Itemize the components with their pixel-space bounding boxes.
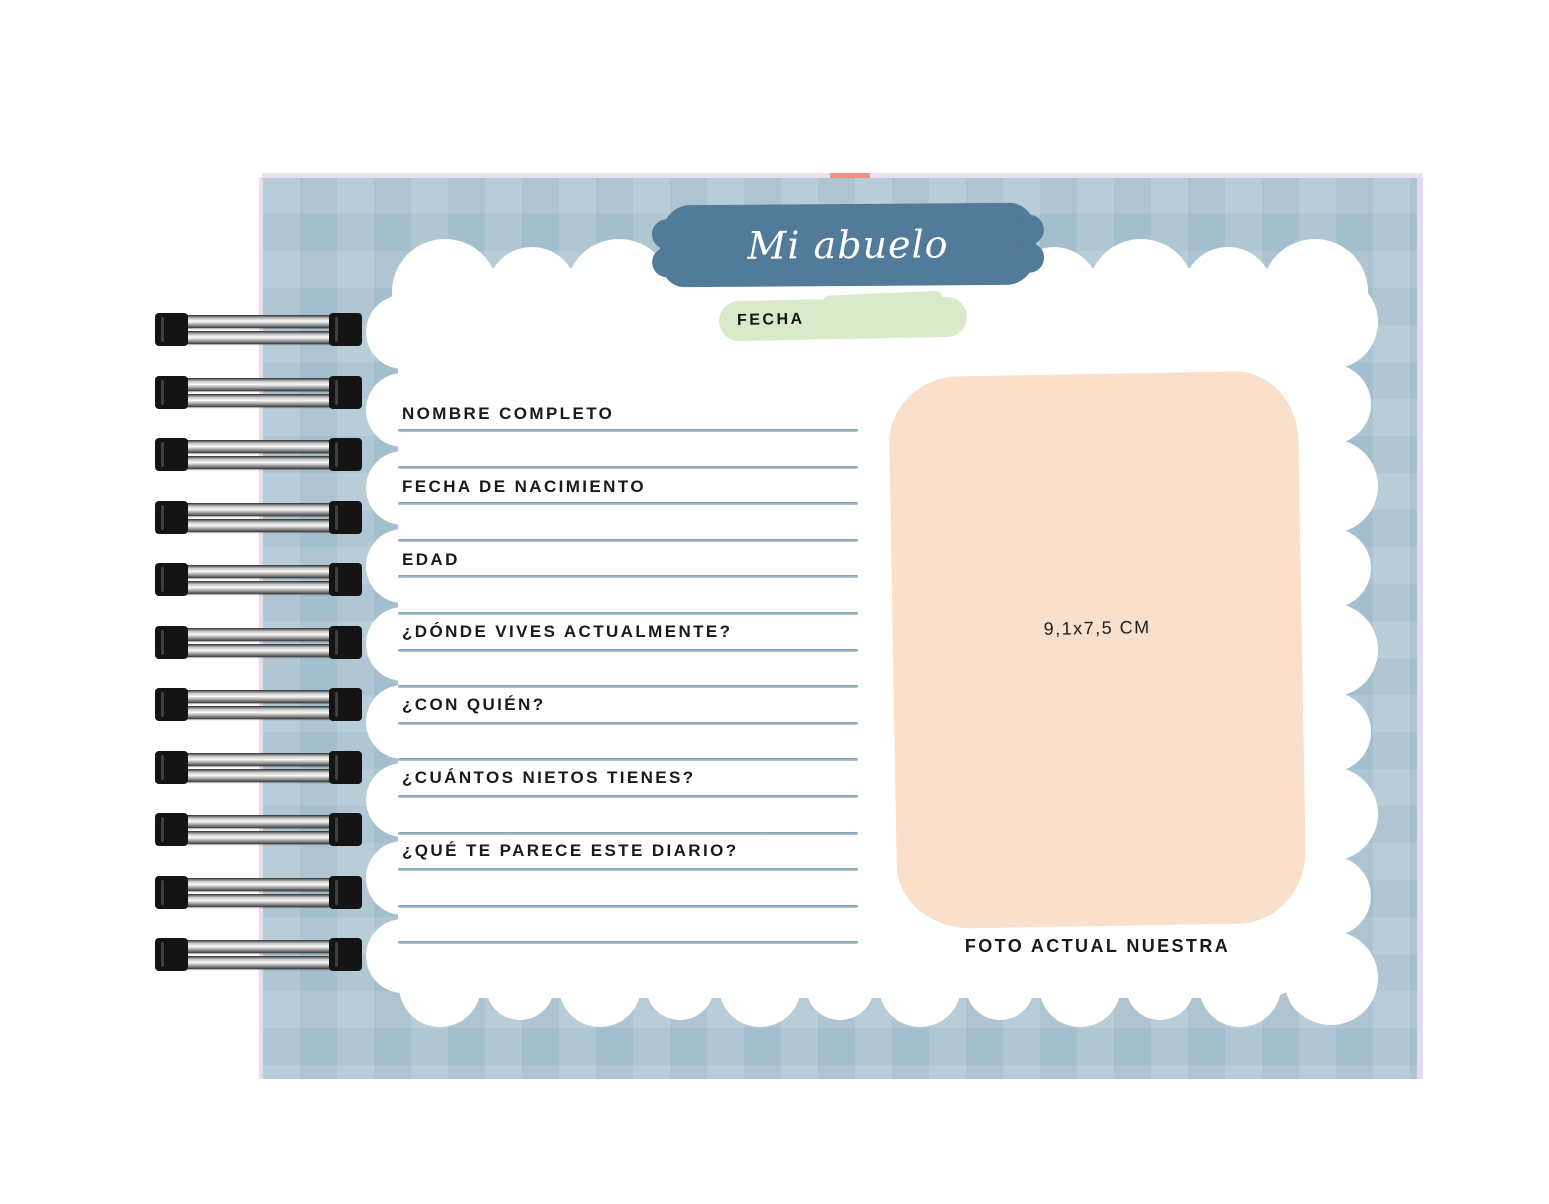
spiral-ring: [155, 938, 362, 971]
ring-hole: [329, 376, 362, 409]
salmon-tab: [830, 173, 870, 178]
answer-line: [398, 685, 858, 688]
label-underline: [398, 429, 858, 432]
ring-wire: [161, 956, 356, 969]
ring-hole: [155, 626, 188, 659]
ring-wire: [161, 878, 356, 891]
ring-wire: [161, 769, 356, 782]
label-underline: [398, 649, 858, 652]
field-label-edad: EDAD: [402, 550, 460, 570]
answer-line: [398, 466, 858, 469]
field-label-nombre-completo: NOMBRE COMPLETO: [402, 404, 614, 424]
ring-wire: [161, 331, 356, 344]
ring-hole: [329, 438, 362, 471]
ring-wire: [161, 503, 356, 516]
ring-wire: [161, 831, 356, 844]
ring-hole: [155, 876, 188, 909]
ring-wire: [161, 378, 356, 391]
ring-wire: [161, 628, 356, 641]
ring-wire: [161, 690, 356, 703]
ring-hole: [329, 938, 362, 971]
ring-hole: [329, 688, 362, 721]
date-highlight: FECHA: [719, 297, 968, 342]
label-underline: [398, 795, 858, 798]
banner-lobe: [652, 247, 682, 277]
spiral-ring: [155, 688, 362, 721]
spiral-ring: [155, 501, 362, 534]
ring-hole: [329, 626, 362, 659]
field-label-que-te-parece: ¿QUÉ TE PARECE ESTE DIARIO?: [402, 841, 739, 861]
ring-wire: [161, 565, 356, 578]
label-underline: [398, 502, 858, 505]
page-edge-right: [1417, 177, 1423, 1079]
ring-hole: [155, 438, 188, 471]
ring-hole: [329, 313, 362, 346]
field-label-fecha-nacimiento: FECHA DE NACIMIENTO: [402, 477, 646, 497]
ring-wire: [161, 753, 356, 766]
date-label: FECHA: [737, 311, 805, 330]
spiral-ring: [155, 751, 362, 784]
ring-wire: [161, 815, 356, 828]
ring-wire: [161, 581, 356, 594]
spiral-ring: [155, 813, 362, 846]
ring-wire: [161, 706, 356, 719]
ring-hole: [329, 876, 362, 909]
ring-wire: [161, 456, 356, 469]
ring-hole: [155, 563, 188, 596]
banner-lobe: [652, 219, 682, 249]
ring-hole: [155, 313, 188, 346]
spiral-ring: [155, 876, 362, 909]
ring-wire: [161, 894, 356, 907]
answer-line: [398, 612, 858, 615]
field-label-cuantos-nietos: ¿CUÁNTOS NIETOS TIENES?: [402, 768, 696, 788]
ring-wire: [161, 519, 356, 532]
banner-lobe: [1014, 243, 1044, 273]
ring-hole: [155, 938, 188, 971]
spiral-ring: [155, 438, 362, 471]
ring-hole: [155, 751, 188, 784]
field-label-con-quien: ¿CON QUIÉN?: [402, 695, 546, 715]
ring-hole: [329, 813, 362, 846]
spiral-ring: [155, 313, 362, 346]
ring-hole: [155, 376, 188, 409]
ring-hole: [329, 501, 362, 534]
ring-wire: [161, 644, 356, 657]
photo-size-hint: 9,1x7,5 CM: [892, 614, 1301, 642]
spiral-ring: [155, 563, 362, 596]
answer-line: [398, 539, 858, 542]
ring-wire: [161, 940, 356, 953]
ring-hole: [155, 813, 188, 846]
page-title: Mi abuelo: [747, 222, 948, 267]
ring-hole: [329, 563, 362, 596]
spiral-ring: [155, 626, 362, 659]
field-label-donde-vives: ¿DÓNDE VIVES ACTUALMENTE?: [402, 622, 732, 642]
label-underline: [398, 941, 858, 944]
banner-lobe: [1014, 215, 1044, 245]
answer-line: [398, 832, 858, 835]
photo-caption: FOTO ACTUAL NUESTRA: [893, 936, 1302, 957]
answer-line: [398, 905, 858, 908]
label-underline: [398, 722, 858, 725]
journal-spread: Mi abuelo FECHA NOMBRE COMPLETO FECHA DE…: [0, 0, 1549, 1204]
label-underline: [398, 575, 858, 578]
ring-hole: [155, 688, 188, 721]
answer-line: [398, 758, 858, 761]
ring-hole: [155, 501, 188, 534]
ring-wire: [161, 440, 356, 453]
title-banner: Mi abuelo: [660, 203, 1037, 288]
spiral-ring: [155, 376, 362, 409]
ring-hole: [329, 751, 362, 784]
ring-wire: [161, 315, 356, 328]
photo-placeholder: 9,1x7,5 CM: [888, 370, 1307, 929]
label-underline: [398, 868, 858, 871]
ring-wire: [161, 394, 356, 407]
